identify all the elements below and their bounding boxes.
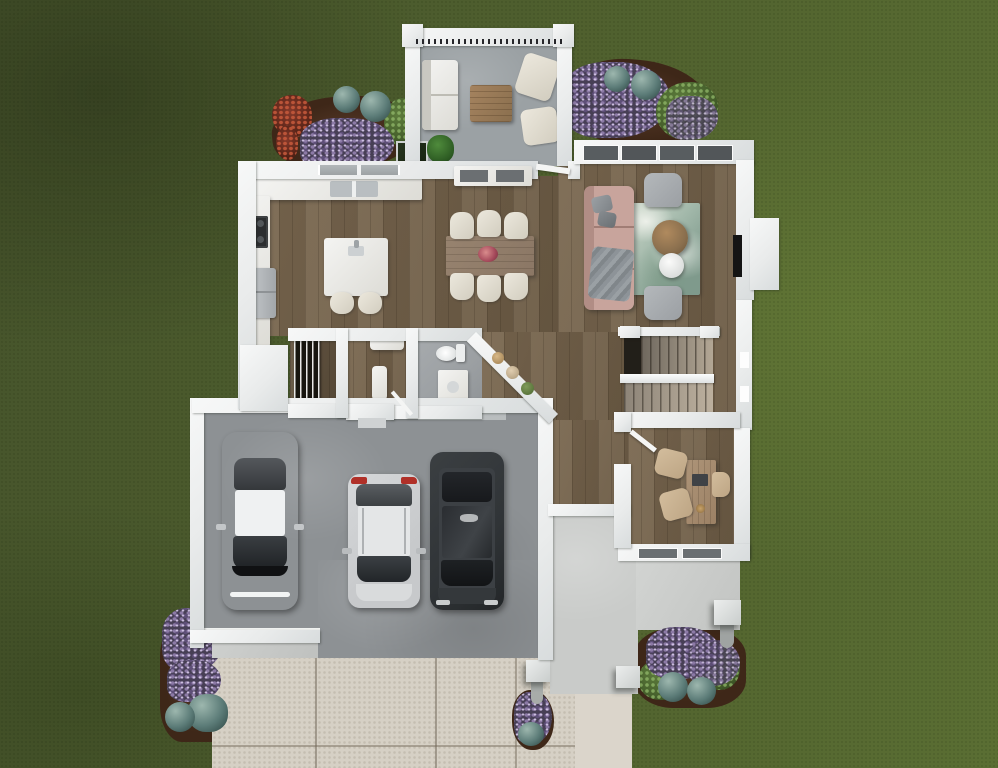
roof-rail — [362, 508, 364, 554]
wall-pantry-top — [288, 328, 482, 341]
stairwell-void — [624, 334, 641, 378]
deck-railing-right — [557, 40, 572, 166]
living-window — [583, 145, 619, 161]
console-cabinet — [454, 166, 532, 186]
office-window — [638, 548, 678, 559]
red-shrub — [276, 126, 298, 160]
roof-rail — [404, 508, 406, 554]
stair-window — [740, 386, 749, 402]
sofa-back — [422, 60, 431, 130]
cowl — [232, 566, 288, 576]
island-stool — [330, 292, 354, 314]
fireplace-bump-out — [750, 218, 779, 290]
stair-post — [620, 326, 640, 338]
patio-post — [616, 666, 640, 688]
deck-railing-left — [405, 40, 420, 166]
burner — [257, 220, 264, 227]
diagonal-shelf-item — [521, 382, 534, 395]
wall-bath-left — [406, 328, 418, 418]
diagonal-shelf-item — [506, 366, 519, 379]
stairs-upper-flight — [641, 334, 713, 378]
hood — [356, 584, 412, 601]
living-window — [621, 145, 657, 161]
mudroom-bench — [372, 366, 387, 400]
dining-chair — [477, 275, 501, 302]
teal-globe-bush — [333, 86, 360, 113]
side-mirror — [294, 524, 304, 530]
wall-office-left-upper — [614, 412, 631, 432]
side-mirror — [216, 524, 226, 530]
kitchen-sink — [330, 181, 378, 197]
round-side-table — [659, 253, 684, 278]
garage-wall-right — [538, 398, 553, 660]
stair-post — [700, 326, 719, 338]
dining-chair — [450, 273, 474, 300]
stair-window — [740, 352, 749, 368]
deck-armchair — [520, 106, 561, 147]
dining-chair — [504, 273, 528, 300]
cushion-seam — [431, 94, 458, 96]
laptop — [692, 474, 708, 486]
wall-right-office — [734, 428, 750, 558]
throw-pillow — [597, 211, 617, 229]
dining-chair — [477, 210, 501, 237]
desk-plant — [696, 504, 705, 513]
wall-office-left-lower — [614, 464, 631, 548]
garage-wall-bottom-left — [190, 630, 320, 643]
sectional-sofa — [584, 186, 634, 310]
headlight — [484, 600, 498, 605]
teal-globe-bush — [631, 70, 661, 100]
rear-window — [234, 458, 286, 490]
car-roof — [358, 506, 410, 556]
window-mullion — [357, 165, 361, 175]
deck-balusters — [416, 39, 562, 44]
dining-chair — [504, 212, 528, 239]
island-stool — [358, 292, 382, 314]
windshield — [233, 536, 287, 570]
windshield — [441, 560, 493, 586]
sink-divider — [352, 181, 356, 197]
taillight — [351, 477, 367, 484]
car-black-suv — [430, 452, 504, 610]
island-faucet — [354, 240, 359, 248]
wall-office-top — [614, 412, 740, 428]
garage-wall-left — [190, 398, 204, 648]
dining-centerpiece — [478, 246, 498, 262]
potted-plant — [427, 135, 454, 163]
sunroof — [442, 472, 492, 502]
console-opening — [460, 170, 488, 182]
patio-post — [526, 660, 550, 682]
toilet-tank — [456, 344, 465, 362]
living-window — [659, 145, 695, 161]
teal-plants — [165, 702, 195, 732]
office-window — [682, 548, 722, 559]
wall-left-lower-block — [240, 345, 288, 411]
wall-pantry-divider — [336, 328, 348, 418]
floor-plan-scene — [0, 0, 998, 768]
taillight — [401, 477, 417, 484]
mudroom-step — [358, 418, 386, 428]
kitchen-window — [318, 165, 400, 175]
headlight — [436, 600, 450, 605]
car-silver-suv — [348, 474, 420, 608]
burner — [257, 236, 264, 243]
throw-blanket — [587, 246, 634, 302]
kitchen-island — [324, 238, 388, 296]
car-white-sedan — [222, 432, 298, 610]
vanity-sink — [447, 381, 459, 393]
side-mirror — [416, 548, 426, 554]
windshield — [357, 556, 411, 582]
patio-post-shadow — [720, 622, 734, 648]
expansion-joint — [212, 745, 632, 747]
fireplace — [733, 235, 742, 277]
purple-flowers — [666, 96, 718, 140]
teal-globe-bush — [658, 672, 688, 702]
teal-plant — [518, 722, 544, 746]
desk-chair — [712, 472, 730, 497]
car-roof — [235, 490, 285, 536]
headlight-strip — [230, 592, 290, 597]
living-armchair — [644, 173, 682, 207]
patio-post-shadow — [531, 680, 543, 704]
dining-chair — [450, 212, 474, 239]
outdoor-coffee-table — [470, 85, 512, 122]
side-mirror — [342, 548, 352, 554]
rear-window — [356, 484, 412, 506]
roof-item — [460, 514, 478, 522]
round-coffee-table — [652, 220, 688, 256]
living-armchair — [644, 286, 682, 320]
patio-post — [714, 600, 741, 625]
expansion-joint — [435, 655, 437, 768]
diagonal-shelf-item — [492, 352, 504, 364]
stairs-handrail — [620, 374, 714, 383]
living-window — [697, 145, 733, 161]
toilet — [436, 346, 457, 361]
outdoor-sofa — [422, 60, 458, 130]
teal-globe-bush — [604, 66, 630, 92]
console-opening — [496, 170, 524, 182]
expansion-joint — [315, 655, 317, 768]
teal-globe-bush — [360, 91, 391, 122]
teal-globe-bush — [687, 677, 716, 705]
